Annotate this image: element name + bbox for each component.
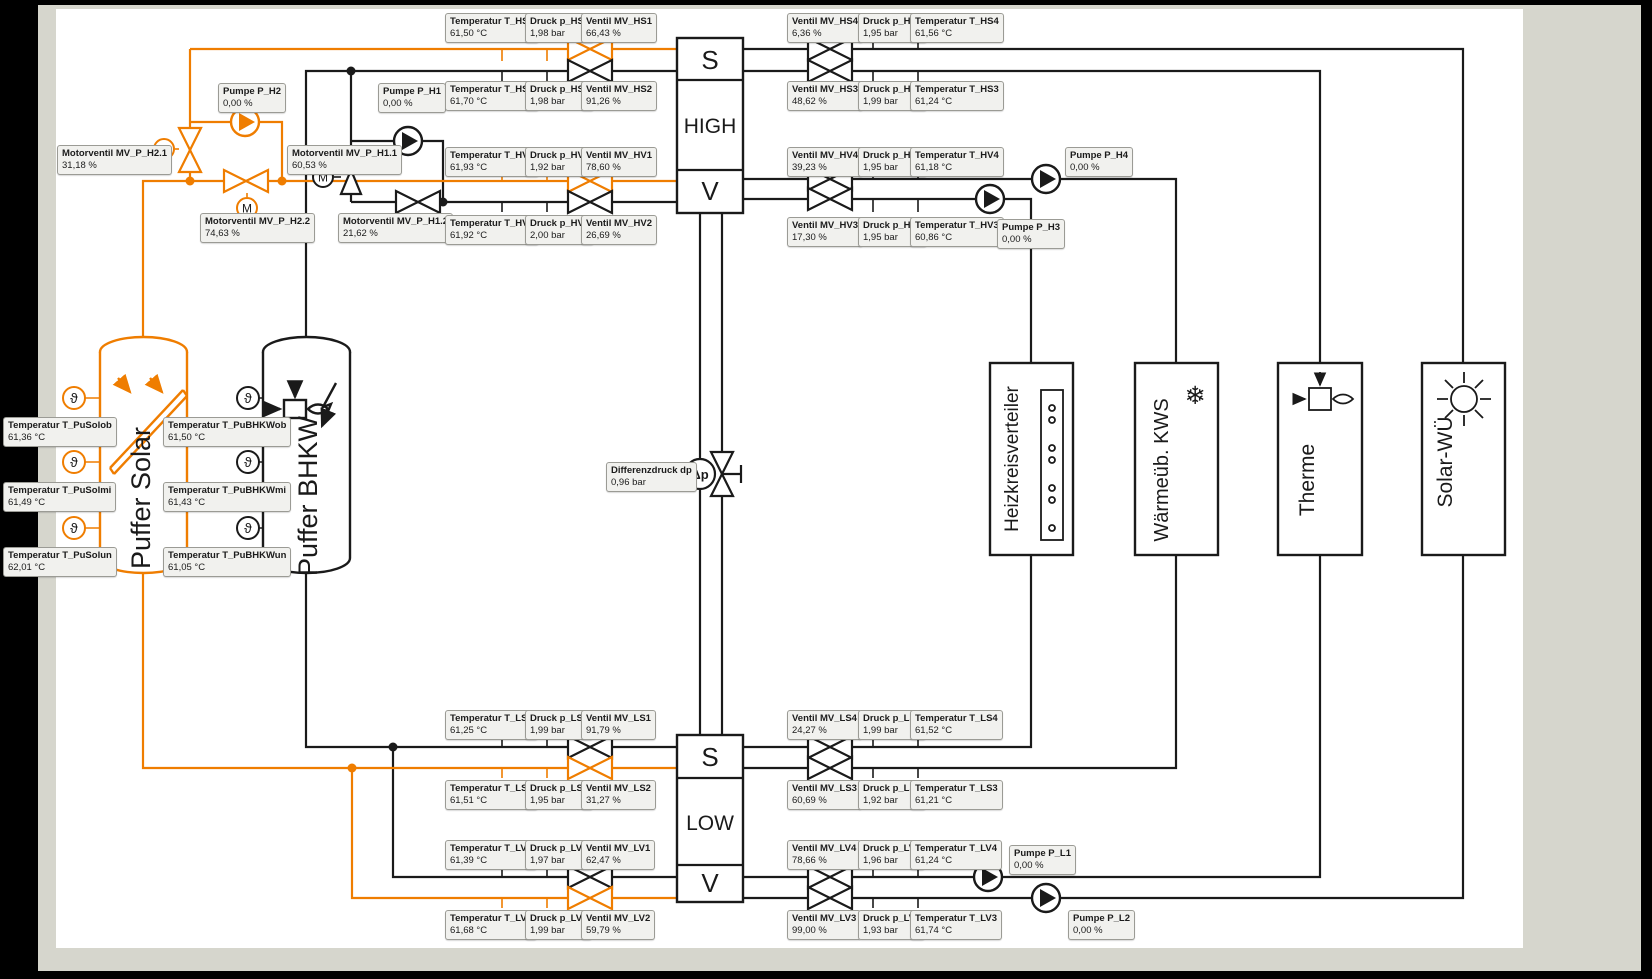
sensor-label-MV_LV2: Ventil MV_LV259,79 % — [581, 910, 655, 940]
sensor-label-MV_HV2: Ventil MV_HV226,69 % — [581, 215, 657, 245]
theta-icon: ϑ — [70, 454, 78, 470]
sensor-label-MV_LS2: Ventil MV_LS231,27 % — [581, 780, 656, 810]
box-heizkreisverteiler: Heizkreisverteiler — [990, 363, 1073, 555]
sensor-label-MV_HS4: Ventil MV_HS46,36 % — [787, 13, 863, 43]
sensor-label-MV_P_H1.2: Motorventil MV_P_H1.221,62 % — [338, 213, 453, 243]
svg-text:Heizkreisverteiler: Heizkreisverteiler — [1002, 385, 1023, 531]
sensor-label-T_LV3: Temperatur T_LV361,74 °C — [910, 910, 1002, 940]
sensor-label-T_PuSolun: Temperatur T_PuSolun62,01 °C — [3, 547, 117, 577]
sensor-label-P_L2: Pumpe P_L20,00 % — [1068, 910, 1135, 940]
sensor-label-T_HS3: Temperatur T_HS361,24 °C — [910, 81, 1004, 111]
box-therme: Therme — [1278, 363, 1362, 555]
scada-screen: Puffer Solar Puffer BHKW ϑ ϑ ϑ ϑ ϑ ϑ — [0, 0, 1652, 979]
sensor-label-P_H4: Pumpe P_H40,00 % — [1065, 147, 1133, 177]
manifold-high: S HIGH V — [677, 38, 743, 213]
sensor-label-T_LV4: Temperatur T_LV461,24 °C — [910, 840, 1002, 870]
sensor-label-MV_P_H2.1: Motorventil MV_P_H2.131,18 % — [57, 145, 172, 175]
snowflake-icon: ❄ — [1185, 382, 1206, 410]
sensor-label-MV_LV1: Ventil MV_LV162,47 % — [581, 840, 655, 870]
box-waermeueb-kws: Wärmeüb. KWS ❄ — [1135, 363, 1218, 555]
sensor-label-T_PuBHKWmi: Temperatur T_PuBHKWmi61,43 °C — [163, 482, 291, 512]
sensor-label-MV_P_H1.1: Motorventil MV_P_H1.160,53 % — [287, 145, 402, 175]
sensor-label-dp: Differenzdruck dp0,96 bar — [606, 462, 697, 492]
sensor-label-T_PuSolmi: Temperatur T_PuSolmi61,49 °C — [3, 482, 116, 512]
sensor-label-P_L1: Pumpe P_L10,00 % — [1009, 845, 1076, 875]
sensor-label-T_HS4: Temperatur T_HS461,56 °C — [910, 13, 1004, 43]
svg-text:Solar-WÜ: Solar-WÜ — [1434, 416, 1457, 507]
sun-icon — [1437, 372, 1491, 426]
puffer-solar-label: Puffer Solar — [126, 427, 156, 569]
valve-MV_P_H2.2[interactable] — [224, 170, 268, 192]
valve-MV_P_H1.2[interactable] — [396, 191, 440, 213]
valve-MV_HS2[interactable] — [568, 60, 612, 82]
sensor-label-P_H1: Pumpe P_H10,00 % — [378, 83, 446, 113]
valve-MV_LV2[interactable] — [568, 887, 612, 909]
box-solar-wue: Solar-WÜ — [1422, 363, 1505, 555]
pump-P_L2[interactable] — [1032, 884, 1060, 912]
valve-MV_LV3[interactable] — [808, 887, 852, 909]
sensor-label-MV_HV4: Ventil MV_HV439,23 % — [787, 147, 863, 177]
sensor-label-T_HV4: Temperatur T_HV461,18 °C — [910, 147, 1004, 177]
svg-text:V: V — [701, 176, 719, 206]
sensor-label-T_LS3: Temperatur T_LS361,21 °C — [910, 780, 1003, 810]
puffer-bhkw-label: Puffer BHKW — [293, 415, 323, 576]
sensor-label-MV_LS1: Ventil MV_LS191,79 % — [581, 710, 656, 740]
sensor-label-T_LS2: Temperatur T_LS261,51 °C — [445, 780, 538, 810]
theta-icon: ϑ — [244, 454, 252, 470]
theta-icon: ϑ — [244, 390, 252, 406]
sensor-label-MV_LS3: Ventil MV_LS360,69 % — [787, 780, 862, 810]
sensor-label-T_HV3: Temperatur T_HV360,86 °C — [910, 217, 1004, 247]
sensor-label-T_LS1: Temperatur T_LS161,25 °C — [445, 710, 538, 740]
valve-MV_HV2[interactable] — [568, 191, 612, 213]
svg-text:HIGH: HIGH — [684, 115, 737, 138]
svg-text:S: S — [701, 742, 718, 772]
manifold-low: S LOW V — [677, 735, 743, 902]
pump-P_H4[interactable] — [1032, 165, 1060, 193]
sensor-label-MV_LS4: Ventil MV_LS424,27 % — [787, 710, 862, 740]
sensor-label-P_H3: Pumpe P_H30,00 % — [997, 219, 1065, 249]
valve-MV_HS3[interactable] — [808, 60, 852, 82]
svg-text:S: S — [701, 45, 718, 75]
valve-MV_LS3[interactable] — [808, 757, 852, 779]
sensor-label-T_LV1: Temperatur T_LV161,39 °C — [445, 840, 537, 870]
valve-MV_LS2[interactable] — [568, 757, 612, 779]
sensor-label-T_PuBHKWob: Temperatur T_PuBHKWob61,50 °C — [163, 417, 291, 447]
sensor-label-MV_P_H2.2: Motorventil MV_P_H2.274,63 % — [200, 213, 315, 243]
theta-icon: ϑ — [70, 390, 78, 406]
svg-text:Therme: Therme — [1296, 444, 1319, 516]
sensor-label-MV_LV4: Ventil MV_LV478,66 % — [787, 840, 861, 870]
theta-icon: ϑ — [70, 520, 78, 536]
sensor-label-MV_HS3: Ventil MV_HS348,62 % — [787, 81, 863, 111]
svg-text:LOW: LOW — [686, 812, 734, 835]
sensor-label-MV_HS2: Ventil MV_HS291,26 % — [581, 81, 657, 111]
pump-P_H3[interactable] — [976, 185, 1004, 213]
sensor-label-MV_HS1: Ventil MV_HS166,43 % — [581, 13, 657, 43]
theta-icon: ϑ — [244, 520, 252, 536]
valve-MV_HV3[interactable] — [808, 188, 852, 210]
svg-text:Wärmeüb. KWS: Wärmeüb. KWS — [1151, 398, 1173, 541]
sensor-label-P_H2: Pumpe P_H20,00 % — [218, 83, 286, 113]
sensor-label-T_PuBHKWun: Temperatur T_PuBHKWun61,05 °C — [163, 547, 291, 577]
sensor-label-T_PuSolob: Temperatur T_PuSolob61,36 °C — [3, 417, 117, 447]
valve-MV_P_H2.1[interactable] — [179, 128, 201, 172]
sensor-label-T_LV2: Temperatur T_LV261,68 °C — [445, 910, 537, 940]
svg-text:V: V — [701, 868, 719, 898]
sensor-label-MV_HV3: Ventil MV_HV317,30 % — [787, 217, 863, 247]
sensor-label-MV_HV1: Ventil MV_HV178,60 % — [581, 147, 657, 177]
sensor-label-MV_LV3: Ventil MV_LV399,00 % — [787, 910, 861, 940]
sensor-label-T_LS4: Temperatur T_LS461,52 °C — [910, 710, 1003, 740]
manifold-icon — [1041, 390, 1063, 540]
